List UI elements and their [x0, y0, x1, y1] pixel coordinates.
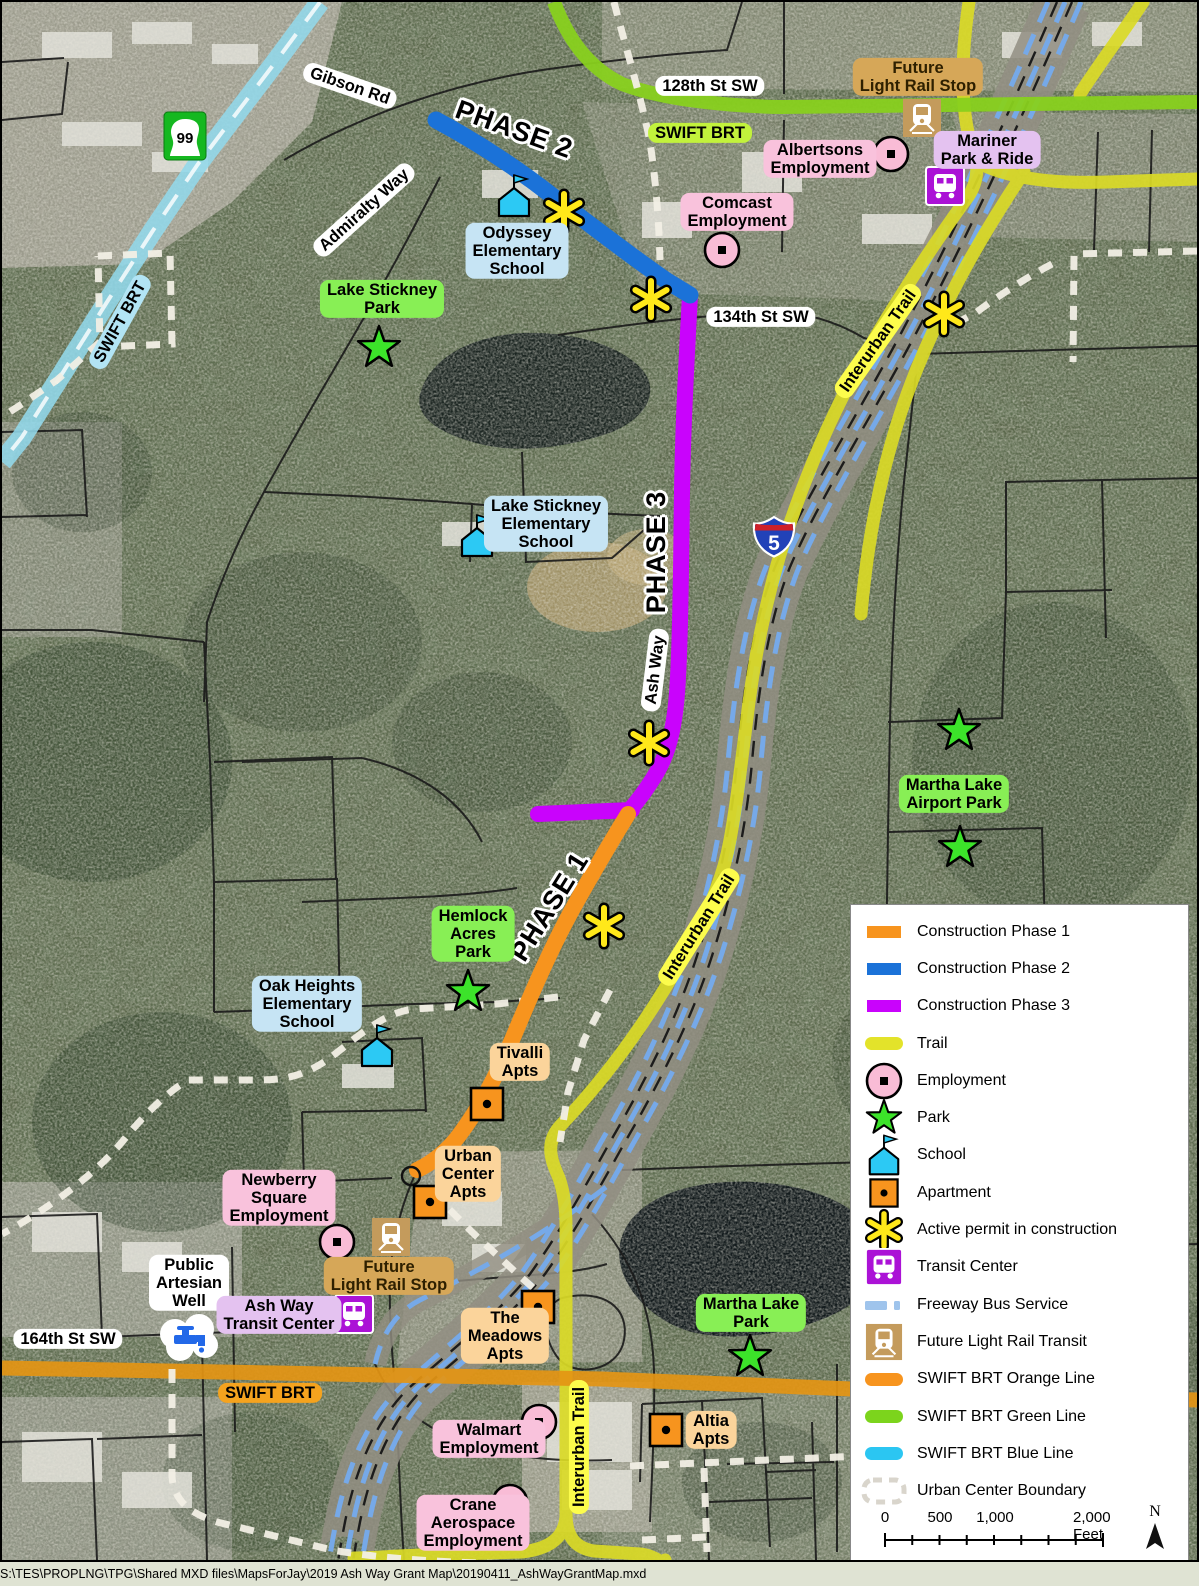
legend-label: Employment — [917, 1072, 1006, 1090]
light-rail-marker-icon — [851, 1321, 917, 1363]
legend-label: Construction Phase 3 — [917, 997, 1070, 1015]
legend-row: Park — [851, 1099, 1188, 1136]
legend-row: School — [851, 1137, 1188, 1174]
label-swift-brt-orange: SWIFT BRT — [218, 1383, 322, 1403]
label-hemlock-acres-park: Hemlock Acres Park — [432, 906, 515, 962]
legend-label: SWIFT BRT Blue Line — [917, 1445, 1074, 1463]
active-permit-icon — [588, 908, 619, 944]
active-permit-icon — [635, 281, 666, 317]
legend-row: Apartment — [851, 1174, 1188, 1211]
active-permit-icon — [928, 296, 959, 332]
artesian-well-icon — [160, 1314, 218, 1361]
legend-row: SWIFT BRT Orange Line — [851, 1361, 1188, 1398]
transit-center-marker-icon — [851, 1246, 917, 1288]
legend-row: Employment — [851, 1062, 1188, 1099]
label-martha-lake-park: Martha Lake Park — [696, 1294, 806, 1332]
svg-text:99: 99 — [177, 130, 194, 147]
legend-label: Construction Phase 1 — [917, 923, 1070, 941]
legend-label: Urban Center Boundary — [917, 1482, 1086, 1500]
employment-marker-icon — [851, 1061, 917, 1101]
phase3-line-icon — [851, 1000, 917, 1012]
label-comcast-employment: Comcast Employment — [680, 193, 793, 231]
label-urban-center-apts: Urban Center Apts — [435, 1146, 501, 1202]
label-walmart-employment: Walmart Employment — [432, 1420, 545, 1458]
phase2-line-icon — [851, 963, 917, 975]
scale-tick-label: 1,000 — [976, 1509, 1014, 1526]
legend-label: Future Light Rail Transit — [917, 1333, 1087, 1351]
legend-label: Park — [917, 1109, 950, 1127]
label-newberry-square-employment: Newberry Square Employment — [222, 1170, 335, 1226]
north-label: N — [1138, 1503, 1172, 1521]
label-phase3: PHASE 3 — [642, 491, 672, 614]
light-rail-icon — [372, 1218, 410, 1256]
legend-row: Trail — [851, 1025, 1188, 1062]
north-arrow-icon — [1142, 1521, 1168, 1551]
map-canvas: 5 99 Gibson Rd PHASE 2 128th St SW SWIFT… — [0, 0, 1199, 1562]
label-the-meadows-apts: The Meadows Apts — [461, 1308, 549, 1364]
school-marker-icon — [851, 1132, 917, 1178]
scale-tick-label: 0 — [881, 1509, 889, 1526]
legend-label: Apartment — [917, 1184, 991, 1202]
label-oak-heights-elementary: Oak Heights Elementary School — [252, 976, 362, 1032]
legend-row: Transit Center — [851, 1249, 1188, 1286]
footer-bar: S:\TES\PROPLNG\TPG\Shared MXD files\Maps… — [0, 1562, 1199, 1586]
apartment-icon — [471, 1088, 503, 1120]
legend-label: Construction Phase 2 — [917, 960, 1070, 978]
transit-center-icon — [926, 167, 964, 205]
label-altia-apts: Altia Apts — [686, 1411, 737, 1449]
scale-tick-label: 500 — [927, 1509, 952, 1526]
label-crane-aerospace-employment: Crane Aerospace Employment — [416, 1495, 529, 1551]
apartment-marker-icon — [851, 1174, 917, 1212]
legend-label: SWIFT BRT Orange Line — [917, 1370, 1095, 1388]
label-mariner-park-and-ride: Mariner Park & Ride — [934, 131, 1041, 169]
label-128th-st: 128th St SW — [655, 76, 764, 96]
employment-icon — [705, 233, 739, 267]
legend-row: Construction Phase 3 — [851, 988, 1188, 1025]
legend-row: Construction Phase 1 — [851, 913, 1188, 950]
label-interurban-trail-south: Interurban Trail — [569, 1380, 589, 1514]
label-ash-way-transit-center: Ash Way Transit Center — [217, 1296, 342, 1334]
svg-text:5: 5 — [768, 532, 780, 555]
legend-panel: Construction Phase 1 Construction Phase … — [850, 904, 1189, 1562]
north-arrow: N — [1138, 1503, 1172, 1556]
legend-row: Future Light Rail Transit — [851, 1323, 1188, 1360]
urban-boundary-line-icon — [851, 1476, 917, 1506]
active-permit-icon — [633, 725, 664, 761]
legend-row: SWIFT BRT Blue Line — [851, 1435, 1188, 1472]
label-swift-brt-green: SWIFT BRT — [648, 123, 752, 143]
phase3-branch — [538, 810, 632, 814]
label-lake-stickney-elementary: Lake Stickney Elementary School — [484, 496, 608, 552]
map-document: 5 99 Gibson Rd PHASE 2 128th St SW SWIFT… — [0, 0, 1199, 1586]
label-tivalli-apts: Tivalli Apts — [490, 1043, 550, 1081]
swift-orange-line-icon — [851, 1373, 917, 1386]
employment-icon — [874, 137, 908, 171]
legend-label: Active permit in construction — [917, 1221, 1117, 1239]
label-lake-stickney-park: Lake Stickney Park — [320, 280, 444, 318]
legend-row: SWIFT BRT Green Line — [851, 1398, 1188, 1435]
label-future-light-rail-south: Future Light Rail Stop — [324, 1257, 454, 1295]
trail-line-icon — [851, 1037, 917, 1050]
legend-label: SWIFT BRT Green Line — [917, 1408, 1086, 1426]
legend-row: Freeway Bus Service — [851, 1286, 1188, 1323]
label-164th-st: 164th St SW — [13, 1329, 122, 1349]
legend-row: Active permit in construction — [851, 1211, 1188, 1248]
swift-blue-line-icon — [851, 1447, 917, 1460]
label-134th-st: 134th St SW — [706, 307, 815, 327]
label-future-light-rail-north: Future Light Rail Stop — [853, 58, 983, 96]
legend-label: Freeway Bus Service — [917, 1296, 1068, 1314]
phase1-line-icon — [851, 926, 917, 938]
document-path: S:\TES\PROPLNG\TPG\Shared MXD files\Maps… — [0, 1567, 646, 1581]
label-odyssey-elementary: Odyssey Elementary School — [466, 223, 569, 279]
light-rail-icon — [903, 99, 941, 137]
swift-green-line-icon — [851, 1410, 917, 1423]
legend-label: Transit Center — [917, 1258, 1018, 1276]
freeway-bus-line-icon — [851, 1299, 917, 1311]
state-route-99-shield: 99 — [164, 112, 206, 160]
legend-label: School — [917, 1146, 966, 1164]
employment-icon — [320, 1225, 354, 1259]
label-martha-lake-airport-park: Martha Lake Airport Park — [899, 775, 1009, 813]
scale-bar: 0 500 1,000 2,000 Feet N — [863, 1509, 1178, 1557]
scale-bar-ruler — [880, 1531, 1120, 1549]
legend-label: Trail — [917, 1035, 948, 1053]
label-albertsons-employment: Albertsons Employment — [763, 140, 876, 178]
legend-row: Construction Phase 2 — [851, 950, 1188, 987]
apartment-icon — [650, 1414, 682, 1446]
